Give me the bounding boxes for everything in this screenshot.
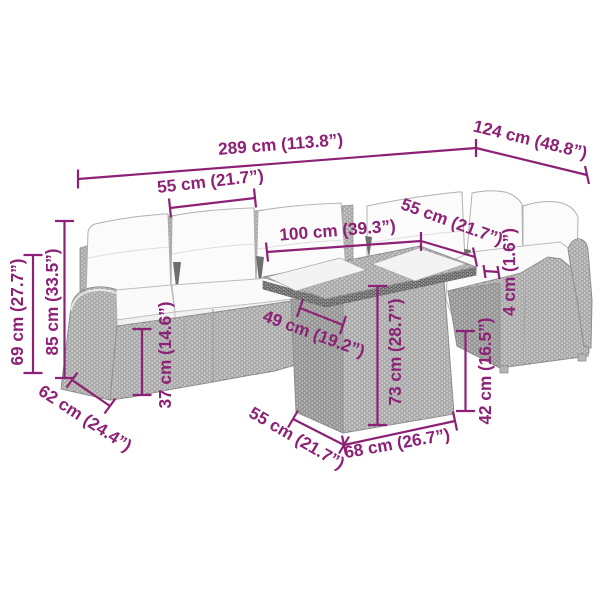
svg-text:73 cm (28.7”): 73 cm (28.7”): [385, 298, 405, 405]
svg-text:42 cm (16.5”): 42 cm (16.5”): [475, 317, 495, 424]
svg-text:85 cm (33.5”): 85 cm (33.5”): [42, 248, 62, 355]
svg-text:69 cm (27.7”): 69 cm (27.7”): [7, 258, 27, 365]
svg-text:37 cm (14.6”): 37 cm (14.6”): [155, 301, 175, 408]
svg-text:4 cm (1.6”): 4 cm (1.6”): [499, 228, 519, 316]
